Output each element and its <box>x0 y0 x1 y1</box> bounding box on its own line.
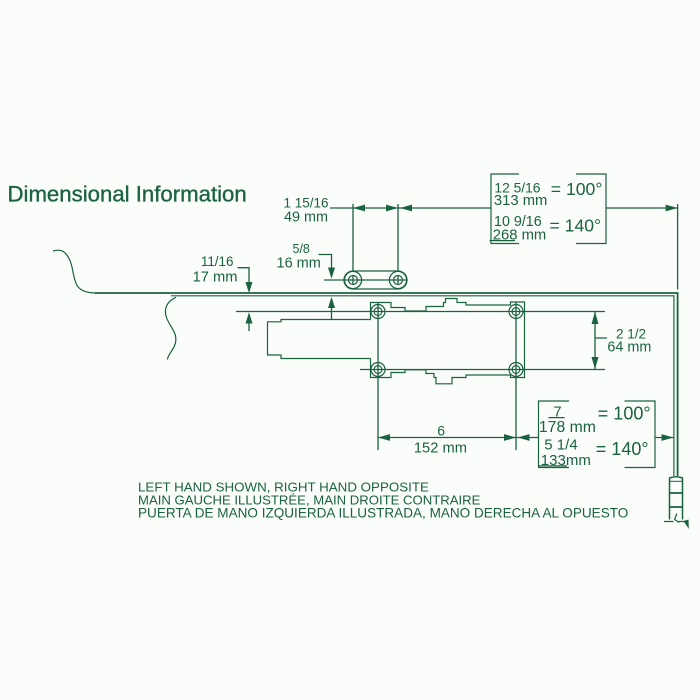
svg-text:Dimensional Information: Dimensional Information <box>8 181 247 206</box>
svg-text:= 140°: = 140° <box>596 439 649 459</box>
svg-text:5/8: 5/8 <box>293 242 310 256</box>
svg-text:313 mm: 313 mm <box>494 193 547 209</box>
svg-text:7: 7 <box>554 405 562 421</box>
svg-text:= 100°: = 100° <box>598 404 651 424</box>
svg-text:= 100°: = 100° <box>551 179 603 199</box>
svg-text:49 mm: 49 mm <box>284 210 328 226</box>
svg-text:64 mm: 64 mm <box>607 340 651 356</box>
svg-text:= 140°: = 140° <box>550 215 602 235</box>
svg-text:16 mm: 16 mm <box>277 256 321 272</box>
svg-text:6: 6 <box>437 423 445 439</box>
svg-text:178 mm: 178 mm <box>539 419 596 436</box>
svg-text:1 15/16: 1 15/16 <box>284 195 329 210</box>
svg-text:PUERTA DE MANO IZQUIERDA ILLUS: PUERTA DE MANO IZQUIERDA ILLUSTRADA, MAN… <box>138 506 628 521</box>
svg-text:133mm: 133mm <box>541 452 591 469</box>
svg-text:17 mm: 17 mm <box>193 270 238 286</box>
svg-text:268 mm: 268 mm <box>493 228 546 244</box>
svg-text:152 mm: 152 mm <box>414 441 467 457</box>
svg-text:11/16: 11/16 <box>201 254 234 269</box>
